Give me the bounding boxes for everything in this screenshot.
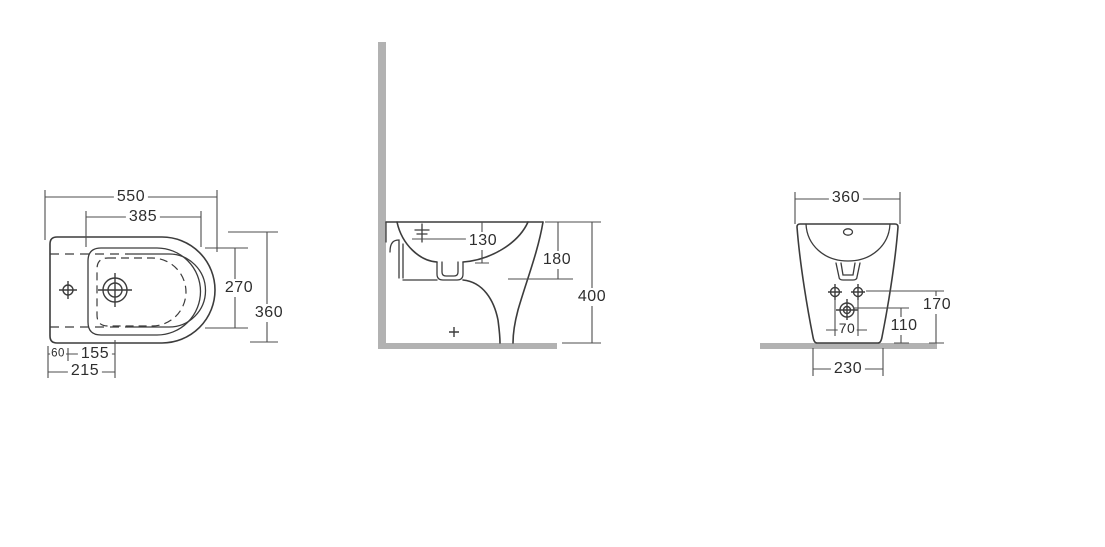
- outlet-crosshair: [836, 299, 858, 321]
- side-hole-crosshair: [59, 281, 77, 299]
- dim-label-edge-to-tap: 215: [68, 362, 102, 380]
- dim-label-overall-height: 400: [575, 288, 609, 306]
- dim-label-fixing-spacing: 70: [838, 320, 857, 336]
- dim-label-inner-width: 385: [126, 208, 160, 226]
- technical-drawing-canvas: [0, 0, 1105, 547]
- side-view-linework: [378, 42, 601, 349]
- dim-label-rear-top-width: 360: [829, 189, 863, 207]
- dim-label-rim-to-outlet: 180: [540, 251, 574, 269]
- dim-label-hole-spacing: 155: [78, 345, 112, 363]
- floor-section-rear: [760, 343, 937, 349]
- dim-label-rim-to-waterline: 130: [466, 232, 500, 250]
- dim-label-overall-width: 550: [114, 188, 148, 206]
- dim-label-outlet-height: 110: [887, 317, 920, 335]
- tap-hole-oval: [844, 229, 853, 235]
- rear-view-linework: [760, 192, 944, 376]
- tap-hole-crosshair: [98, 273, 132, 307]
- dim-label-overall-depth: 360: [252, 304, 286, 322]
- dim-label-inner-depth: 270: [222, 279, 256, 297]
- technical-drawing-page: 550 385 270 360 60 155 215 130 180 400 3…: [0, 0, 1105, 547]
- floor-section-side: [378, 343, 557, 349]
- dim-label-base-width: 230: [831, 360, 865, 378]
- dim-label-edge-to-hole: 60: [50, 347, 66, 361]
- dim-label-fixing-height: 170: [920, 296, 954, 314]
- wall-section: [378, 42, 386, 344]
- registration-cross-side: [449, 327, 459, 337]
- fixing-hole-crosshairs: [828, 284, 865, 300]
